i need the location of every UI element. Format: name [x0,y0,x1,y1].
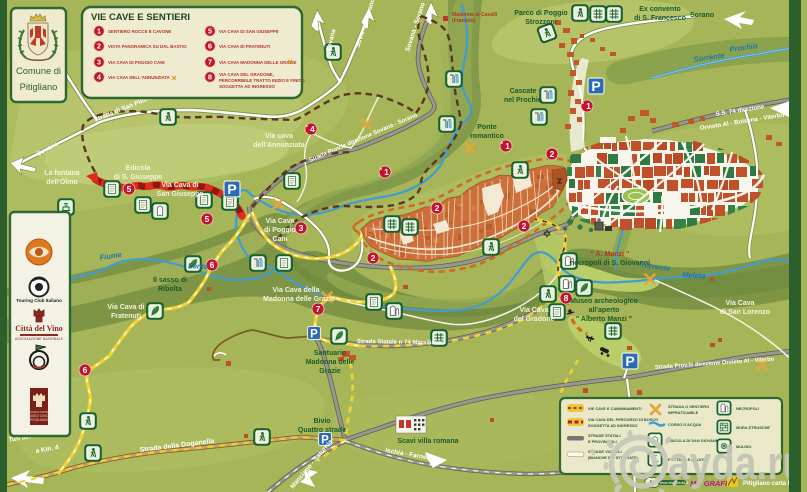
svg-text:Cani: Cani [272,236,287,243]
svg-text:Il sasso di: Il sasso di [153,277,187,284]
svg-text:VIA CAVA DEL GRADONE,: VIA CAVA DEL GRADONE, [219,72,274,77]
svg-text:Ribolta: Ribolta [158,286,182,293]
svg-text:PITIGLIANO: PITIGLIANO [30,418,48,422]
svg-text:dell'Olmo: dell'Olmo [46,179,78,186]
svg-text:6: 6 [208,42,212,51]
svg-text:Ex convento: Ex convento [639,6,681,13]
svg-text:1: 1 [97,27,101,36]
svg-text:Via Cava: Via Cava [265,218,294,225]
svg-text:4: 4 [310,124,315,134]
svg-text:" A. Manzi ": " A. Manzi " [591,251,630,258]
svg-text:Santuario: Santuario [314,350,346,357]
svg-text:VIA CAVA DI POGGIO CANI: VIA CAVA DI POGGIO CANI [108,60,165,65]
svg-text:1: 1 [505,141,510,151]
svg-text:5: 5 [205,214,210,224]
svg-text:5: 5 [127,184,132,194]
svg-text:8: 8 [208,73,212,82]
svg-text:VISTA PANORAMICA SU DAL BASTIO: VISTA PANORAMICA SU DAL BASTIO [108,44,187,49]
svg-text:Touring Club Italiano: Touring Club Italiano [16,298,62,303]
svg-text:*: * [380,168,382,174]
svg-text:Museo archeologico: Museo archeologico [570,298,638,305]
svg-text:VIE CAVE E CAMMINAMENTI: VIE CAVE E CAMMINAMENTI [588,406,642,411]
svg-text:3: 3 [97,58,101,67]
svg-text:STRADA O SENTIERO: STRADA O SENTIERO [668,404,709,409]
svg-text:La fontana: La fontana [44,170,79,177]
svg-text:VIE CAVE E SENTIERI: VIE CAVE E SENTIERI [91,12,190,23]
svg-text:2: 2 [435,203,440,213]
svg-text:ayda.ru: ayda.ru [668,436,806,489]
svg-text:Cascate: Cascate [510,88,537,95]
svg-text:Grazie: Grazie [319,368,341,375]
svg-text:Via cava: Via cava [265,133,293,140]
svg-text:Via Cava: Via Cava [519,307,548,314]
svg-text:VIA CAVA MADONNA DELLE GRAZIE: VIA CAVA MADONNA DELLE GRAZIE [219,60,296,65]
svg-text:Fratenuti: Fratenuti [111,313,141,320]
svg-text:3: 3 [299,223,304,233]
svg-text:Via Cava della: Via Cava della [273,287,320,294]
svg-text:romantico: romantico [470,133,504,140]
svg-text:Edicola: Edicola [126,165,151,172]
svg-text:necropoli di S. Giovanni: necropoli di S. Giovanni [570,260,650,267]
svg-text:7: 7 [208,58,212,67]
svg-text:CORSO D'ACQUA: CORSO D'ACQUA [668,422,702,427]
svg-text:PERCORRIBILE TRATTO INIZIO E F: PERCORRIBILE TRATTO INIZIO E FINITO [219,78,305,83]
svg-text:all'aperto: all'aperto [589,307,620,314]
svg-text:Madonna delle Grazie: Madonna delle Grazie [263,296,335,303]
svg-text:SOGGETTA AD INGRESSO: SOGGETTA AD INGRESSO [588,423,638,428]
svg-text:di San Lorenzo: di San Lorenzo [720,309,770,316]
svg-text:Scavi villa romana: Scavi villa romana [397,438,458,445]
svg-text:6: 6 [83,365,88,375]
svg-text:8: 8 [564,293,569,303]
svg-text:2: 2 [97,42,101,51]
svg-text:VIA CAVA DELL'ANNUNZIATA: VIA CAVA DELL'ANNUNZIATA [108,75,171,80]
svg-text:Città del Vino: Città del Vino [15,324,63,333]
svg-text:ASSOCIAZIONE NAZIONALE: ASSOCIAZIONE NAZIONALE [15,337,64,341]
svg-text:" Alberto Manzi ": " Alberto Manzi " [576,316,632,323]
svg-text:STRADE STATALI: STRADE STATALI [588,433,621,438]
svg-text:1: 1 [384,167,389,177]
svg-text:Parco di Poggio: Parco di Poggio [514,10,567,17]
svg-text:IMPRATICABILE: IMPRATICABILE [668,410,699,415]
svg-text:SOGGETTA AD INGRESSO: SOGGETTA AD INGRESSO [219,84,276,89]
svg-text:Via Cava di: Via Cava di [107,304,144,311]
svg-text:nel Prochio: nel Prochio [504,97,542,104]
svg-text:Lente: Lente [188,261,208,271]
svg-text:Comune di: Comune di [16,66,61,76]
svg-text:Sorano: Sorano [690,12,714,19]
svg-text:6: 6 [210,260,215,270]
svg-text:Quattro strade: Quattro strade [298,427,346,434]
svg-text:VIA CAVA DI FRATENUTI: VIA CAVA DI FRATENUTI [219,44,270,49]
svg-text:Madonna delle: Madonna delle [306,359,355,366]
svg-text:Via Cava: Via Cava [725,300,754,307]
svg-text:*: * [582,102,584,108]
svg-text:2: 2 [522,221,527,231]
svg-text:MURA ETRUSCHE: MURA ETRUSCHE [736,425,770,430]
svg-text:SENTIERO ROCCE E CAVONE: SENTIERO ROCCE E CAVONE [108,29,171,34]
svg-text:*: * [501,142,503,148]
svg-text:(Frantoio): (Frantoio) [452,18,476,24]
svg-text:San Giuseppe: San Giuseppe [157,191,204,198]
svg-text:di Poggio: di Poggio [264,227,296,234]
svg-text:2: 2 [371,253,376,263]
svg-text:VIA CAVA DI SAN GIUSEPPE: VIA CAVA DI SAN GIUSEPPE [219,29,279,34]
svg-text:Meleta: Meleta [682,270,706,281]
svg-text:VIA CAVA DEL PERCORSO DI BOSCO: VIA CAVA DEL PERCORSO DI BOSCO [588,417,658,422]
svg-text:*: * [306,125,308,131]
svg-text:7: 7 [316,304,321,314]
svg-text:NECROPOLI: NECROPOLI [736,406,759,411]
svg-text:Bivio: Bivio [313,418,330,425]
svg-text:Ponte: Ponte [477,124,497,131]
svg-text:5: 5 [208,27,212,36]
svg-text:1: 1 [586,101,591,111]
svg-text:dell'Annunziata: dell'Annunziata [253,142,305,149]
svg-text:Via Cava di: Via Cava di [161,182,198,189]
svg-text:di S. Giuseppe: di S. Giuseppe [114,174,163,181]
svg-text:2: 2 [550,149,555,159]
svg-text:di S. Francesco: di S. Francesco [634,15,686,22]
svg-text:del Gradone: del Gradone [514,316,555,323]
svg-text:Strozzoni: Strozzoni [525,19,557,26]
svg-text:Pitigliano: Pitigliano [20,82,58,92]
